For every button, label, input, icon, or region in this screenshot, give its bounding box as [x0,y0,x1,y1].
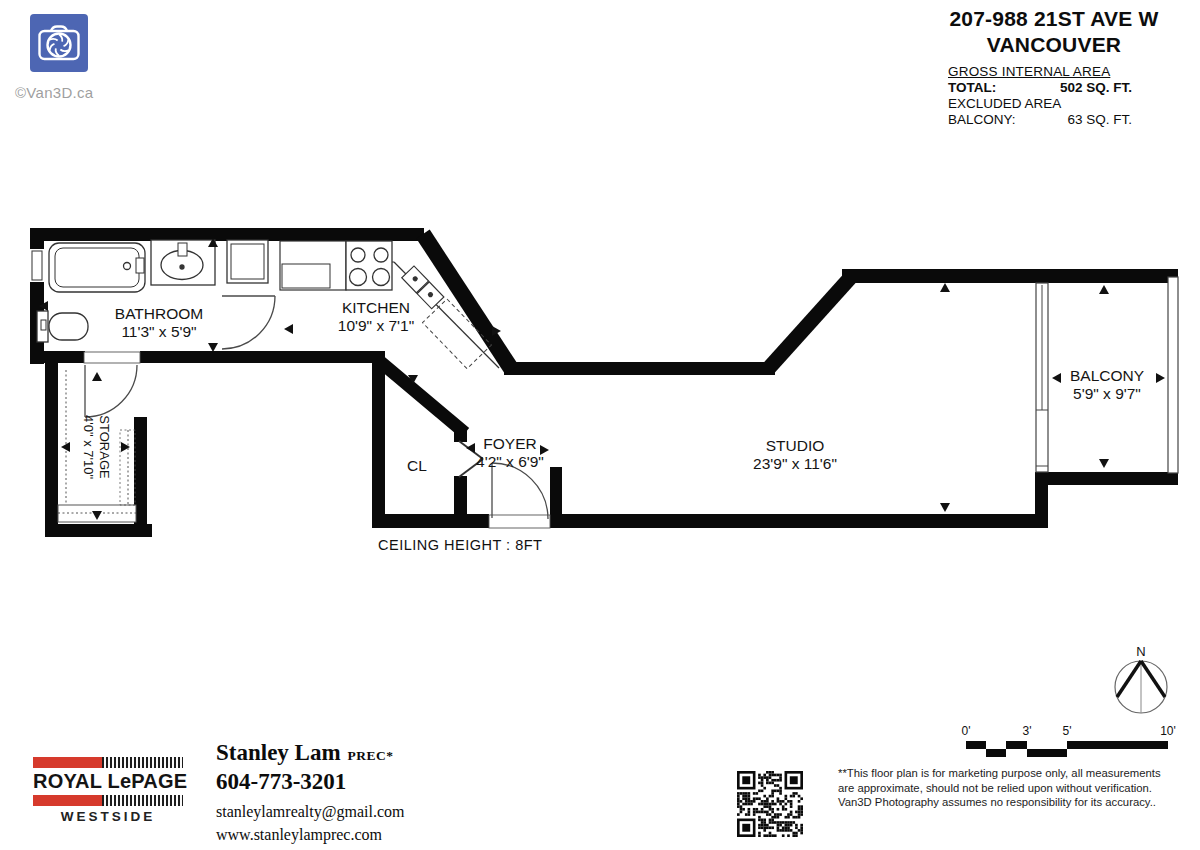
room-label-closet: CL [407,457,427,474]
qr-code [737,771,803,837]
agent-email: stanleylamrealty@gmail.com [216,803,404,821]
toilet [37,311,88,342]
floorplan-page: BATHROOM 11'3" x 5'9" KITCHEN 10'9" x 7'… [0,0,1200,850]
bathroom-door [222,296,275,349]
scale-tick-3: 3' [1023,724,1032,738]
shower-closet [227,240,268,283]
balcony-railing [1168,277,1178,473]
camera-aperture-icon [37,22,81,64]
agent-contact-block: Stanley LamPREC* 604-773-3201 stanleylam… [216,740,404,844]
storage-door [85,365,137,417]
agent-phone: 604-773-3201 [216,769,404,795]
bathroom-sink [151,240,215,285]
scale-tick-5: 5' [1063,724,1072,738]
storage-door-threshold [84,352,140,363]
scale-tick-10: 10' [1160,724,1176,738]
agent-name: Stanley Lam [216,740,341,765]
room-label-kitchen: KITCHEN [342,299,410,316]
room-dims-bathroom: 11'3" x 5'9" [121,323,196,340]
room-label-studio: STUDIO [766,437,825,454]
agent-designation: PREC* [348,748,394,763]
room-dims-balcony: 5'9" x 9'7" [1073,385,1141,402]
balcony-window [1036,283,1048,472]
area-heading: GROSS INTERNAL AREA [948,64,1136,80]
scale-tick-0: 0' [962,724,971,738]
entry-door-threshold [489,515,550,528]
compass: N [1115,644,1167,713]
entry-door [492,463,548,519]
room-dims-foyer: 4'2" x 6'9" [476,453,544,470]
address-line2: VANCOUVER [918,32,1190,58]
bathtub [49,243,145,292]
window-bathroom [30,249,44,282]
area-total-row: TOTAL: 502 SQ. FT. [948,80,1136,96]
room-dims-kitchen: 10'9" x 7'1" [338,317,414,334]
agent-website: www.stanleylamprec.com [216,826,404,844]
van3d-logo [30,14,88,72]
area-balcony-row: BALCONY: 63 SQ. FT. [948,112,1136,128]
area-summary: GROSS INTERNAL AREA TOTAL: 502 SQ. FT. E… [948,64,1136,128]
area-excluded-row: EXCLUDED AREA [948,96,1136,112]
lepage-bar-bottom [33,795,183,806]
van3d-copyright: ©Van3D.ca [15,84,94,101]
brokerage-title: ROYAL LePAGE [33,770,183,793]
scale-bar: 0' 3' 5' 10' [962,724,1176,757]
royal-lepage-logo: ROYAL LePAGE WESTSIDE [33,757,183,824]
room-label-storage: STORAGE [97,415,112,479]
room-dims-studio: 23'9" x 11'6" [753,455,837,472]
listing-address: 207-988 21ST AVE W VANCOUVER [918,6,1190,58]
lepage-bar-top [33,757,183,768]
address-line1: 207-988 21ST AVE W [918,6,1190,32]
area-excluded-label: EXCLUDED AREA [948,96,1061,112]
area-balcony-label: BALCONY: [948,112,1016,128]
ceiling-height-note: CEILING HEIGHT : 8FT [378,537,542,553]
room-dims-storage: 4'0" x 7'10" [81,415,96,479]
area-total-label: TOTAL: [948,80,996,96]
disclaimer-text: **This floor plan is for marketing purpo… [838,766,1174,810]
area-balcony-value: 63 SQ. FT. [1067,112,1136,128]
compass-north-label: N [1136,644,1145,659]
room-label-balcony: BALCONY [1070,367,1144,384]
room-label-bathroom: BATHROOM [115,305,203,322]
area-total-value: 502 SQ. FT. [1060,80,1136,96]
brokerage-region: WESTSIDE [33,809,183,824]
stove [346,241,392,290]
room-label-foyer: FOYER [483,435,536,452]
